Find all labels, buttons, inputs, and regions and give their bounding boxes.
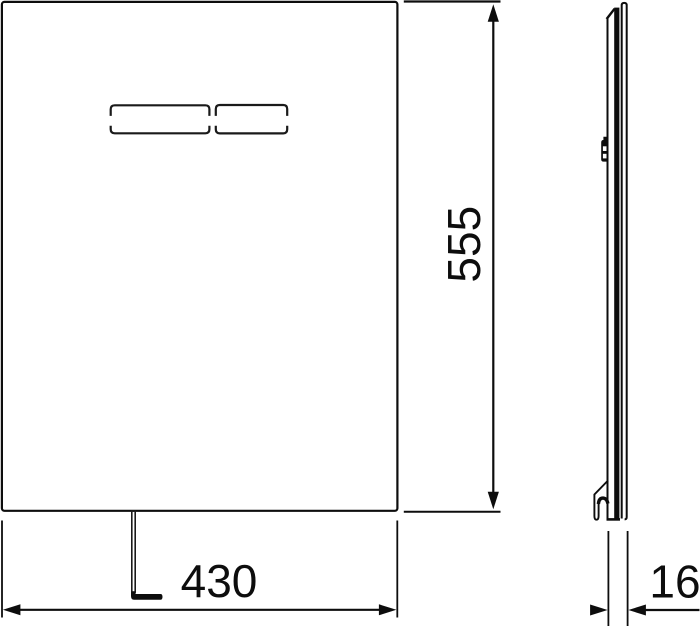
svg-text:430: 430 [181, 555, 258, 607]
svg-text:16: 16 [649, 556, 700, 608]
svg-text:555: 555 [438, 206, 490, 283]
